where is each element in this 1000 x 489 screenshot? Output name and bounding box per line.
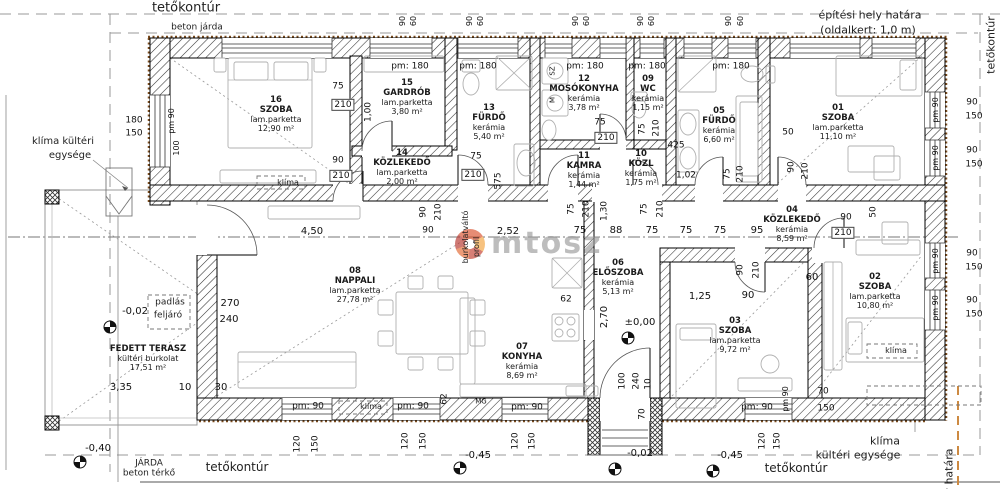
dimension-label: 90 (966, 99, 977, 108)
room-label-line: 15 (381, 78, 432, 88)
room-label-line: lam.parketta (812, 123, 863, 132)
dimension-label: 150 (965, 113, 982, 122)
dimension-label: 60 (806, 273, 819, 283)
annotation-label: burkolatváltó (462, 211, 470, 264)
annotation-label: JÁRDA (135, 460, 163, 469)
dimension-label: pm 90 (932, 248, 940, 274)
dimension-label: 70 (639, 408, 648, 419)
dimension-label: 10 (645, 378, 654, 389)
room-label-line: 5,40 m² (472, 132, 506, 141)
annotation-label: klíma (870, 436, 900, 447)
room-label-line: 04 (763, 205, 821, 215)
dimension-label: 60 (477, 16, 485, 26)
dimension-label: 575 (495, 172, 504, 189)
dimension-label: 2,52 (497, 227, 519, 237)
dimension-label: 210 (653, 119, 662, 136)
dimension-label: 210 (331, 99, 354, 111)
dimension-label: -0,45 (717, 451, 743, 461)
dimension-label: 70 (817, 388, 828, 397)
room-label-line: kerámia (625, 169, 657, 178)
room-label-line: 1,15 m² (632, 103, 664, 112)
room-label-line: 11,10 m² (812, 132, 863, 141)
room-label-line: KAMRA (567, 161, 602, 171)
dimension-label: 100 (173, 140, 181, 155)
room-label-line: 10 (625, 149, 657, 159)
dimension-label: ±0,00 (625, 318, 656, 328)
room-label-line: 12 (549, 74, 618, 84)
dimension-label: -0,45 (465, 451, 491, 461)
room-label-line: 01 (812, 103, 863, 113)
dimension-label: 50 (782, 129, 793, 138)
dimension-label: 75 (594, 119, 605, 128)
room-label-line: lam.parketta (381, 98, 432, 107)
room-label-line: SZOBA (709, 326, 760, 336)
room-label-line: 3,78 m² (549, 103, 618, 112)
room-label-line: lam.parketta (709, 336, 760, 345)
room-label-line: MOSÓKONYHA (549, 84, 618, 94)
room-label-line: kerámia (702, 126, 736, 135)
dimension-label: 90 (966, 297, 977, 306)
room-label-line: NAPPALI (329, 276, 380, 286)
dimension-label: 10 (179, 383, 192, 393)
dimension-label: 150 (529, 432, 538, 449)
room-label: 16SZOBAlam.parketta12,90 m² (250, 95, 301, 134)
dimension-label: 90 (966, 147, 977, 156)
dimension-label: pm 90 (782, 386, 790, 412)
dimension-label: 60 (583, 16, 591, 26)
room-label-line: KÖZLEKEDŐ (763, 215, 821, 225)
annotation-label: kültéri egysége (816, 450, 901, 461)
dimension-label: 90 (420, 206, 429, 217)
dimension-label: -0,40 (85, 444, 111, 454)
room-label: 10KÖZLkerámia1,75 m² (625, 149, 657, 188)
dimension-label: 4,50 (301, 227, 323, 237)
dimension-label: 425 (667, 142, 684, 151)
annotation-label: klíma (360, 403, 382, 411)
dimension-label: 210 (737, 165, 746, 182)
annotation-label: tetőkontúr (765, 462, 828, 474)
room-label-line: 12,90 m² (250, 124, 301, 133)
dimension-label: pm 90 (932, 97, 940, 123)
room-label-line: kerámia (472, 123, 506, 132)
annotation-label: profil (473, 237, 481, 257)
level-marker (707, 465, 720, 478)
level-marker (74, 456, 87, 469)
dimension-label: 210 (594, 132, 617, 144)
room-label-line: 5,13 m² (592, 287, 643, 296)
dimension-label: 90 (422, 227, 433, 236)
dimension-label: 210 (831, 227, 854, 239)
dimension-label: pm: 180 (628, 63, 666, 72)
room-label-line: WC (632, 84, 664, 94)
room-label-line: 05 (702, 106, 736, 116)
dimension-label: 150 (817, 405, 834, 414)
dimension-label: 2,70 (600, 306, 610, 328)
dimension-label: -0,02 (627, 449, 653, 459)
room-label-line: kerámia (763, 225, 821, 234)
dimension-label: 240 (219, 315, 238, 325)
room-label: 13FÜRDŐkerámia5,40 m² (472, 103, 506, 142)
dimension-label: 75 (680, 226, 693, 236)
dimension-label: 150 (312, 435, 321, 452)
level-marker (104, 321, 117, 334)
level-marker (622, 332, 635, 345)
dimension-label: 90 (788, 161, 797, 172)
dimension-label: 90 (966, 250, 977, 259)
dimension-label: 150 (965, 311, 982, 320)
dimension-label: 1,00 (365, 102, 374, 122)
dimension-label: 120 (402, 432, 411, 449)
annotation-label: klíma (277, 179, 299, 187)
room-label: 05FÜRDŐkerámia6,60 m² (702, 106, 736, 145)
room-label-line: 3,80 m² (381, 107, 432, 116)
dimension-label: 180 (125, 117, 142, 126)
dimension-label: 150 (420, 432, 429, 449)
dimension-label: 75 (646, 226, 659, 236)
level-marker (609, 463, 622, 476)
dimension-label: 1,02 (676, 172, 696, 181)
room-label-line: 6,60 m² (702, 135, 736, 144)
dimension-label: pm 90 (168, 108, 176, 134)
room-label-line: KÖZL (625, 159, 657, 169)
annotation-label: beton járda (171, 24, 223, 33)
dimension-label: 100 (619, 372, 628, 389)
dimension-label: 270 (220, 299, 239, 309)
dimension-label: pm: 180 (391, 63, 429, 72)
annotation-label: építési hely határa (944, 448, 955, 489)
level-marker (454, 462, 467, 475)
dimension-label: 75 (568, 203, 577, 214)
room-label-line: 16 (250, 95, 301, 105)
annotation-label: (oldalkert: 1,0 m) (820, 25, 916, 36)
dimension-label: 62 (441, 393, 450, 404)
dimension-label: 60 (737, 16, 745, 26)
room-label: 06ELŐSZOBAkerámia5,13 m² (592, 258, 643, 297)
dimension-label: 210 (802, 162, 811, 179)
room-label-line: 2,00 m² (373, 177, 431, 186)
dimension-label: pm 90 (932, 295, 940, 321)
dimension-label: pm: 90 (511, 404, 543, 413)
room-label-line: 17,51 m² (110, 363, 186, 372)
room-label: 07KONYHAkerámia8,69 m² (502, 342, 542, 381)
room-label-line: FÜRDŐ (702, 116, 736, 126)
dimension-label: 75 (470, 153, 481, 162)
room-label-line: kültéri burkolat (110, 354, 186, 363)
room-label-line: FEDETT TERASZ (110, 344, 186, 354)
room-label-line: 07 (502, 342, 542, 352)
dimension-label: 75 (641, 203, 650, 214)
dimension-label: 90 (332, 157, 343, 166)
dimension-label: 210 (583, 200, 592, 217)
room-label-line: 8,59 m² (763, 234, 821, 243)
annotation-label: építési hely határa (818, 10, 921, 21)
dimension-label: 90 (737, 264, 746, 275)
dimension-label: 120 (512, 432, 521, 449)
dimension-label: 75 (639, 123, 648, 134)
room-label-line: lam.parketta (373, 168, 431, 177)
dimension-label: pm: 180 (712, 63, 750, 72)
dimension-label: 90 (399, 16, 407, 26)
room-label-line: kerámia (502, 362, 542, 371)
room-label: 01SZOBAlam.parketta11,10 m² (812, 103, 863, 142)
dimension-label: 1,25 (689, 292, 711, 302)
annotation-label: klíma (885, 347, 907, 355)
room-label-line: ELŐSZOBA (592, 268, 643, 278)
annotation-label: beton térkő (123, 470, 175, 479)
room-label-line: 02 (849, 272, 900, 282)
dimension-label: 210 (753, 261, 762, 278)
dimension-label: 210 (657, 200, 666, 217)
dimension-label: 150 (965, 161, 982, 170)
dimension-label: 1,30 (601, 201, 610, 221)
room-label-line: 09 (632, 74, 664, 84)
room-label: 15GARDRÓBlam.parketta3,80 m² (381, 78, 432, 117)
annotation-label: klíma kültéri (32, 137, 94, 147)
room-label-line: 1,75 m² (625, 178, 657, 187)
room-label-line: 14 (373, 148, 431, 158)
dimension-label: 88 (610, 226, 623, 236)
room-label-line: 9,72 m² (709, 345, 760, 354)
dimension-label: 90 (572, 16, 580, 26)
room-label: 09WCkerámia1,15 m² (632, 74, 664, 113)
dimension-label: 3,35 (110, 383, 132, 393)
room-label-line: 06 (592, 258, 643, 268)
room-label-line: KÖZLEKEDŐ (373, 158, 431, 168)
dimension-label: 120 (294, 435, 303, 452)
dimension-label: 60 (410, 16, 418, 26)
annotation-label: tetőkontúr (206, 461, 269, 473)
room-label-line: kerámia (549, 94, 618, 103)
dimension-label: MG (475, 399, 486, 406)
dimension-label: -0,02 (122, 307, 148, 317)
room-label-line: 1,44 m² (567, 180, 602, 189)
dimension-label: pm: 90 (741, 404, 773, 413)
dimension-label: 30 (215, 383, 228, 393)
room-label-line: 03 (709, 316, 760, 326)
floor-plan: mtosz 16SZOBAlam.parketta12,90 m²15GARDR… (0, 0, 1000, 489)
room-label-line: kerámia (632, 94, 664, 103)
dimension-label: 120 (759, 432, 768, 449)
dimension-label: 150 (125, 130, 142, 139)
room-label-line: 10,80 m² (849, 301, 900, 310)
room-label-line: 11 (567, 151, 602, 161)
room-label-line: FÜRDŐ (472, 113, 506, 123)
dimension-label: pm 90 (932, 145, 940, 171)
dimension-label: 62 (560, 296, 571, 305)
dimension-label: 210 (329, 170, 352, 182)
dimension-label: 90 (637, 16, 645, 26)
dimension-label: 210 (461, 169, 484, 181)
room-label-line: lam.parketta (329, 286, 380, 295)
dimension-label: 75 (714, 226, 727, 236)
dimension-label: 90 (742, 291, 755, 301)
annotation-label: egysége (49, 151, 91, 161)
room-label-line: kerámia (567, 171, 602, 180)
dimension-label: M (550, 97, 557, 103)
room-label-line: SZOBA (812, 113, 863, 123)
dimension-label: 210 (435, 203, 444, 220)
room-label-line: KONYHA (502, 352, 542, 362)
room-label: 03SZOBAlam.parketta9,72 m² (709, 316, 760, 355)
room-label: 04KÖZLEKEDŐkerámia8,59 m² (763, 205, 821, 244)
dimension-label: pm: 180 (566, 63, 604, 72)
room-label: FEDETT TERASZkültéri burkolat17,51 m² (110, 344, 186, 373)
room-label-line: 13 (472, 103, 506, 113)
dimension-label: 50 (870, 206, 879, 217)
annotation-label: padlás (155, 299, 185, 308)
annotation-label: feljáró (154, 312, 182, 321)
room-label-line: GARDRÓB (381, 88, 432, 98)
dimension-label: 90 (725, 16, 733, 26)
room-label-line: kerámia (592, 278, 643, 287)
room-label: 08NAPPALIlam.parketta27,78 m² (329, 266, 380, 305)
annotation-label: tetőkontúr (152, 2, 220, 15)
room-label: 14KÖZLEKEDŐlam.parketta2,00 m² (373, 148, 431, 187)
room-label: 12MOSÓKONYHAkerámia3,78 m² (549, 74, 618, 113)
room-label-line: 27,78 m² (329, 295, 380, 304)
room-label-line: lam.parketta (849, 292, 900, 301)
dimension-label: 95 (751, 226, 764, 236)
dimension-label: 90 (466, 16, 474, 26)
dimension-label: 150 (965, 264, 982, 273)
room-label: 11KAMRAkerámia1,44 m² (567, 151, 602, 190)
dimension-label: pm: 90 (397, 403, 429, 412)
dimension-label: 240 (633, 372, 642, 389)
room-label-line: 08 (329, 266, 380, 276)
dimension-label: 75 (332, 83, 343, 92)
dimension-label: pm: 180 (459, 63, 497, 72)
annotation-label: tetőkontúr (986, 16, 997, 74)
dimension-label: SZ (550, 66, 557, 75)
room-label: 02SZOBAlam.parketta10,80 m² (849, 272, 900, 311)
room-label-line: 8,69 m² (502, 371, 542, 380)
dimension-label: 75 (724, 168, 733, 179)
dimension-label: 60 (648, 16, 656, 26)
dimension-label: 90 (840, 214, 851, 223)
dimension-label: 150 (774, 432, 783, 449)
room-label-line: lam.parketta (250, 115, 301, 124)
room-label-line: SZOBA (250, 105, 301, 115)
dimension-label: pm: 90 (292, 403, 324, 412)
dimension-label: 75 (574, 226, 587, 236)
room-label-line: SZOBA (849, 282, 900, 292)
